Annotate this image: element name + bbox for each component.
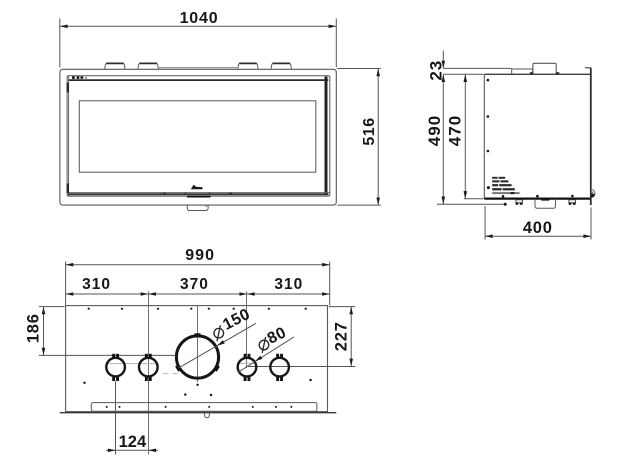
svg-text:124: 124	[119, 433, 147, 451]
svg-text:227: 227	[333, 321, 351, 351]
svg-text:370: 370	[180, 276, 209, 293]
svg-text:310: 310	[274, 276, 303, 293]
svg-text:186: 186	[24, 313, 42, 343]
svg-text:150: 150	[220, 306, 253, 334]
svg-text:490: 490	[425, 115, 444, 146]
svg-text:990: 990	[185, 247, 215, 264]
svg-text:1040: 1040	[180, 10, 219, 27]
svg-text:516: 516	[361, 117, 378, 145]
svg-text:470: 470	[446, 115, 465, 146]
svg-text:310: 310	[82, 276, 111, 293]
svg-text:400: 400	[523, 219, 553, 237]
svg-text:23: 23	[427, 60, 446, 81]
